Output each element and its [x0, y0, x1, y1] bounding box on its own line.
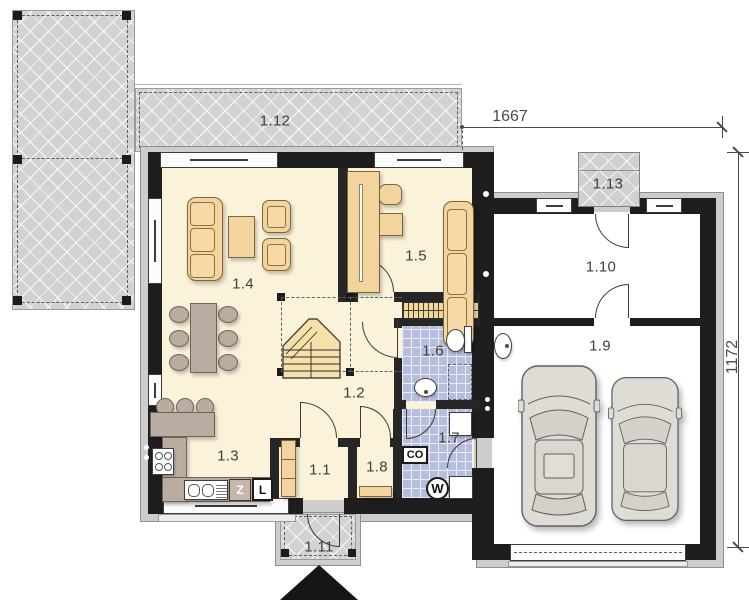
dining-chair — [218, 354, 238, 371]
armchair — [262, 238, 291, 271]
sofa-cushion — [190, 254, 215, 278]
dimension-extension — [462, 130, 463, 150]
door-leaf — [300, 402, 301, 438]
stove — [152, 448, 174, 475]
terrace-left-edge — [17, 15, 128, 303]
room-label-1-4: 1.4 — [232, 276, 254, 293]
room-label-1-8: 1.8 — [366, 459, 388, 476]
window-sash — [154, 383, 156, 398]
sink-bowl — [202, 484, 214, 497]
room-label-1-13: 1.13 — [593, 176, 623, 193]
garage-washbasin — [494, 333, 512, 359]
wall — [686, 544, 716, 560]
chimney-line — [578, 170, 640, 171]
room-label-1-10: 1.10 — [586, 259, 616, 276]
sofa-cushion — [190, 228, 215, 252]
terrace-post — [122, 296, 131, 305]
window-sash — [656, 205, 673, 207]
sink-bowl — [188, 484, 200, 497]
armchair — [262, 200, 291, 233]
wall-dot — [144, 445, 149, 450]
sink-drainer — [216, 483, 227, 498]
wall — [393, 409, 402, 498]
coffee-table — [228, 216, 255, 258]
door-leaf — [339, 514, 340, 547]
door-leaf — [476, 438, 477, 468]
wall — [394, 358, 402, 402]
room-label-1-6: 1.6 — [422, 343, 444, 360]
stair-opening-ext — [351, 371, 402, 372]
wall-dot — [485, 406, 490, 411]
porch-post — [348, 549, 356, 557]
window-sash — [154, 220, 156, 262]
washbasin — [414, 378, 437, 397]
burner-icon — [164, 463, 172, 471]
dining-chair — [169, 330, 189, 347]
washing-machine — [449, 476, 473, 499]
room-label-1-12: 1.12 — [260, 113, 290, 130]
terrace-post — [13, 296, 22, 305]
sofa-cushion — [447, 253, 467, 295]
kitchen-sink — [184, 480, 228, 500]
sofa-cushion — [447, 209, 467, 251]
armchair-seat — [267, 244, 286, 266]
toilet-tank — [464, 326, 472, 353]
cabinet-groove — [359, 184, 363, 282]
floor-plan: Z L CO W — [0, 0, 749, 600]
heating-unit-co: CO — [402, 446, 428, 464]
window — [536, 198, 572, 213]
dimension-line-top — [462, 127, 722, 128]
door-leaf — [628, 214, 629, 248]
room-label-1-11: 1.11 — [304, 539, 333, 556]
car — [607, 374, 683, 524]
wall — [436, 400, 480, 409]
terrace-left-midline — [17, 158, 128, 159]
porch-post — [281, 549, 289, 557]
wall-dot — [144, 455, 149, 460]
window-sash — [190, 159, 248, 161]
desk — [379, 213, 403, 236]
wall — [344, 498, 486, 514]
garage-door-line — [514, 552, 682, 553]
terrace-top-edge — [139, 92, 458, 148]
window — [374, 152, 464, 168]
room-label-1-1: 1.1 — [309, 462, 331, 479]
window-sash — [397, 159, 441, 161]
shower — [448, 364, 472, 400]
window — [160, 152, 278, 168]
wall — [630, 318, 700, 326]
burner-icon — [164, 452, 172, 460]
desk-chair — [379, 184, 402, 205]
wall — [394, 400, 406, 409]
entrance-arrow-icon — [280, 565, 358, 600]
room-label-1-2: 1.2 — [343, 385, 365, 402]
dimension-dot — [460, 125, 464, 129]
stair-opening-ext — [351, 297, 402, 298]
terrace-post — [122, 11, 131, 20]
dimension-width-label: 1667 — [492, 108, 528, 126]
fridge: L — [252, 478, 273, 501]
wall-dot — [483, 271, 489, 277]
kitchen-peninsula — [150, 412, 215, 437]
staircase — [278, 308, 354, 380]
closet-shelf — [359, 486, 392, 497]
dimension-height-label: 1172 — [724, 340, 742, 374]
wall — [482, 544, 510, 560]
car — [518, 362, 600, 530]
armchair-seat — [267, 206, 286, 228]
dining-chair — [169, 306, 189, 323]
window-sill — [158, 514, 296, 522]
wall — [494, 318, 594, 326]
faucet-icon — [424, 390, 428, 394]
door-leaf — [360, 406, 361, 438]
sofa-cushion — [190, 202, 215, 226]
garage-door-sill — [508, 561, 688, 567]
window — [148, 198, 162, 284]
dining-table — [190, 303, 217, 373]
dining-chair — [218, 330, 238, 347]
sofa — [187, 197, 223, 281]
room-label-1-9: 1.9 — [589, 338, 611, 355]
wall — [338, 438, 360, 447]
terrace-post — [13, 155, 22, 164]
window-sash — [546, 205, 563, 207]
hall-wardrobe — [281, 440, 296, 497]
door-leaf — [628, 284, 629, 318]
window-sash — [195, 505, 257, 507]
water-heater-w: W — [426, 477, 449, 500]
roof-edge-line — [135, 84, 462, 85]
office-cabinet — [347, 171, 380, 293]
dishwasher: Z — [229, 479, 251, 501]
room-label-1-7: 1.7 — [438, 430, 460, 447]
faucet-icon — [505, 344, 509, 348]
burner-icon — [155, 463, 163, 471]
door-leaf — [406, 409, 407, 439]
terrace-post — [13, 11, 22, 20]
terrace-post — [122, 155, 131, 164]
wall — [348, 447, 357, 498]
dining-chair — [218, 306, 238, 323]
burner-icon — [155, 452, 163, 460]
toilet-bowl — [446, 329, 465, 352]
wall — [390, 438, 402, 447]
dining-chair — [169, 354, 189, 371]
door-leaf — [397, 322, 398, 358]
room-label-1-3: 1.3 — [217, 448, 239, 465]
room-label-1-5: 1.5 — [405, 248, 427, 265]
wall-dot — [483, 191, 489, 197]
window — [646, 198, 682, 213]
wall-dot — [485, 397, 490, 402]
wall — [700, 198, 716, 560]
